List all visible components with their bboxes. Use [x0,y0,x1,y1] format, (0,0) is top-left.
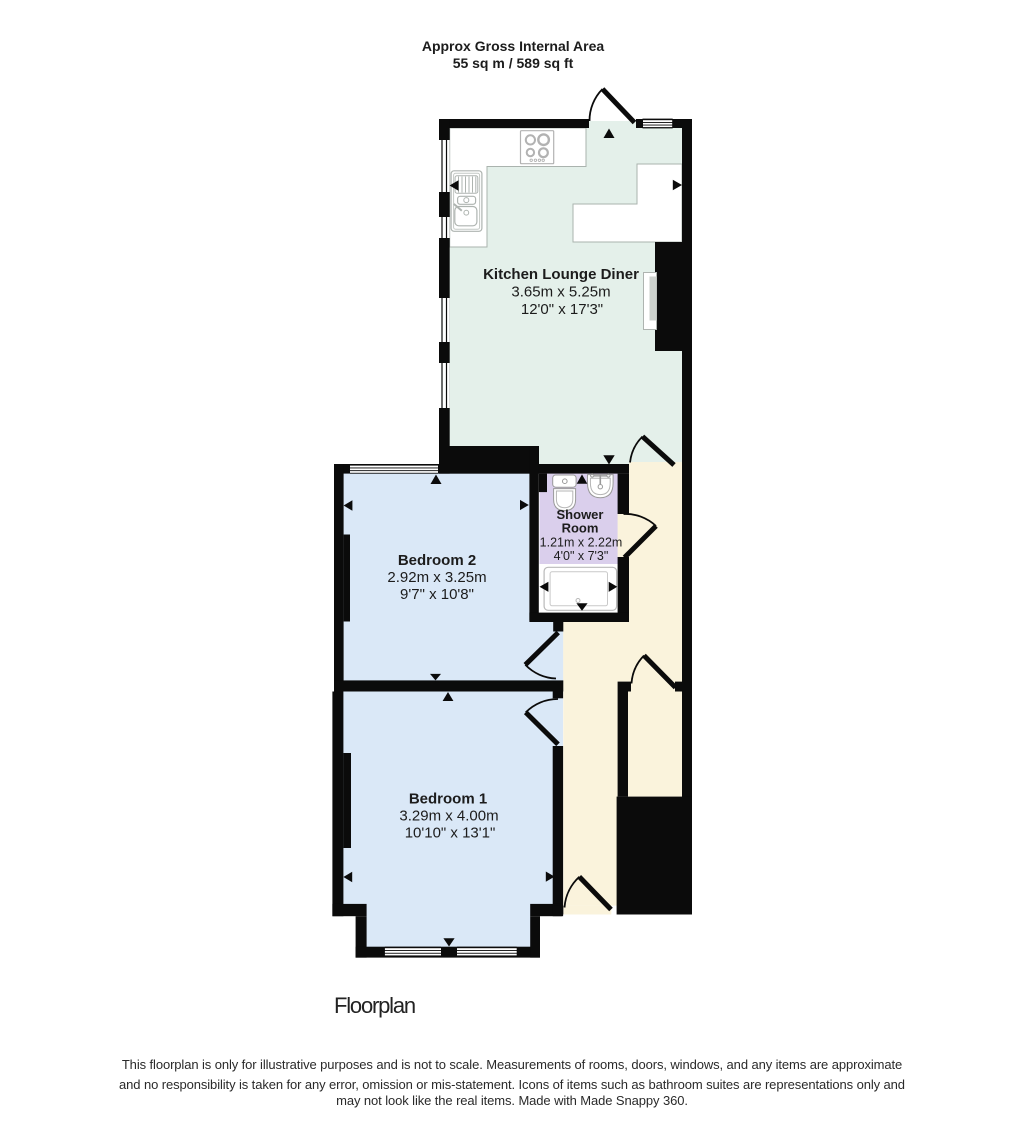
svg-text:This floorplan is only for ill: This floorplan is only for illustrative … [122,1057,902,1072]
svg-text:Kitchen Lounge Diner: Kitchen Lounge Diner [483,266,639,283]
svg-text:1.21m x 2.22m: 1.21m x 2.22m [540,536,623,550]
svg-text:2.92m x 3.25m: 2.92m x 3.25m [387,569,486,586]
svg-text:3.65m x 5.25m: 3.65m x 5.25m [511,284,610,301]
svg-text:may not look like the real ite: may not look like the real items. Made w… [336,1093,688,1108]
svg-text:9'7" x 10'8": 9'7" x 10'8" [400,586,474,603]
svg-text:12'0" x 17'3": 12'0" x 17'3" [521,301,603,318]
svg-text:3.29m x 4.00m: 3.29m x 4.00m [399,808,498,825]
svg-text:and no responsibility is taken: and no responsibility is taken for any e… [119,1077,905,1092]
svg-text:Approx Gross Internal Area: Approx Gross Internal Area [422,38,605,54]
svg-text:4'0" x 7'3": 4'0" x 7'3" [554,549,609,563]
svg-text:Floorplan: Floorplan [334,993,415,1018]
svg-text:10'10" x 13'1": 10'10" x 13'1" [405,825,496,842]
svg-text:Bedroom 2: Bedroom 2 [398,552,476,569]
svg-text:55 sq m / 589 sq ft: 55 sq m / 589 sq ft [453,55,574,71]
svg-text:Room: Room [562,521,599,536]
svg-text:Bedroom 1: Bedroom 1 [409,791,487,808]
